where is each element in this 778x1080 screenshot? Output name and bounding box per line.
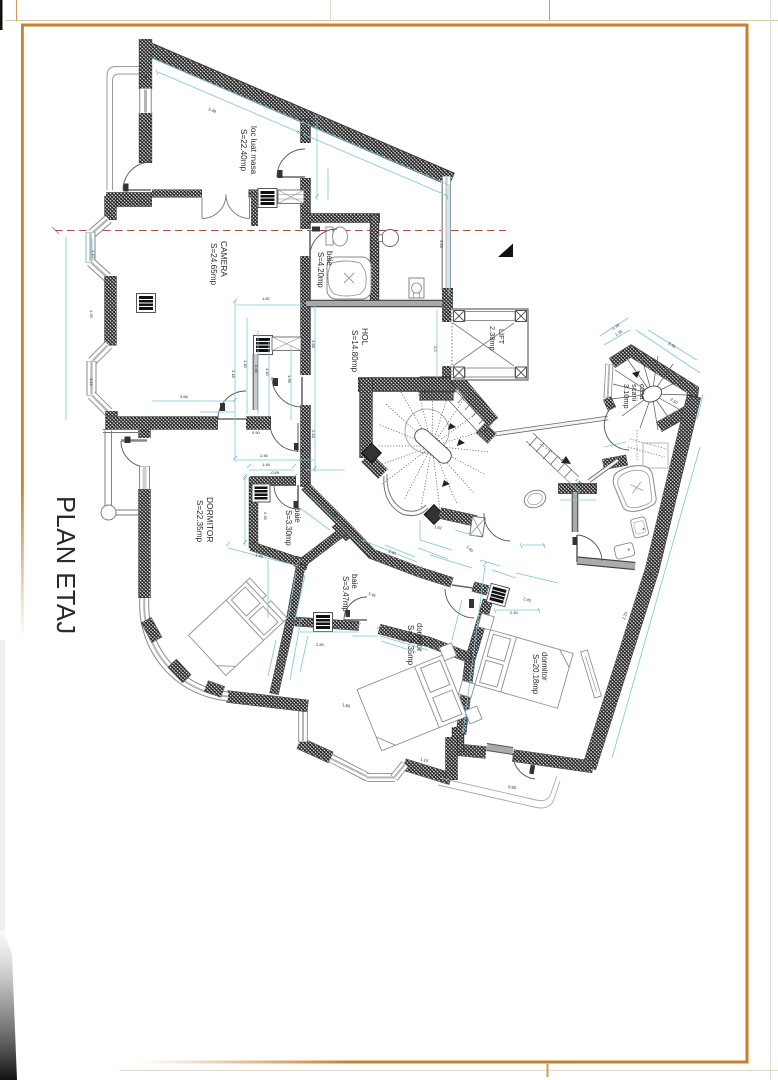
svg-text:loc luat masa: loc luat masa [249,126,258,175]
svg-text:S=20.35mp: S=20.35mp [406,625,415,666]
svg-text:S=3.47mp: S=3.47mp [341,576,350,612]
svg-text:2.0: 2.0 [433,346,438,352]
svg-text:2.40: 2.40 [510,610,519,615]
svg-text:1.35: 1.35 [89,310,94,319]
svg-text:2.35: 2.35 [263,512,268,521]
svg-text:DORMITOR: DORMITOR [205,497,215,542]
svg-text:1.12: 1.12 [89,378,94,387]
svg-text:1.86: 1.86 [140,74,149,79]
svg-text:LIFT: LIFT [497,329,506,345]
svg-text:HOL: HOL [360,328,370,346]
svg-text:S=20.18mp: S=20.18mp [531,654,540,695]
svg-text:S=14.80mp: S=14.80mp [350,330,359,373]
svg-text:S=22.40mp: S=22.40mp [239,129,248,172]
svg-text:0.46: 0.46 [254,365,259,374]
svg-text:1.82: 1.82 [262,296,271,301]
svg-text:1.48: 1.48 [262,462,271,467]
svg-text:3.10mp: 3.10mp [622,384,631,409]
svg-text:2.80: 2.80 [316,642,325,647]
svg-text:-0.59: -0.59 [270,470,280,475]
svg-text:1.36: 1.36 [296,448,305,453]
svg-text:3.26: 3.26 [439,240,444,249]
svg-text:baie: baie [350,574,359,589]
svg-text:1.10: 1.10 [91,250,96,259]
svg-text:S=22.35mp: S=22.35mp [195,500,204,543]
svg-text:S=3.30mp: S=3.30mp [284,510,293,546]
svg-text:2.38mp: 2.38mp [488,326,497,351]
svg-text:2.18: 2.18 [311,430,316,439]
svg-text:3.18: 3.18 [231,370,236,379]
svg-text:1.40: 1.40 [243,360,248,369]
svg-text:baie: baie [293,508,302,523]
svg-text:4.40: 4.40 [265,368,270,377]
svg-text:CAMERA: CAMERA [219,241,229,277]
svg-text:PLAN ETAJ: PLAN ETAJ [51,496,79,635]
svg-text:S=24.65mp: S=24.65mp [209,243,218,286]
svg-text:3.68: 3.68 [311,340,316,349]
svg-text:3.66: 3.66 [180,394,189,399]
svg-text:baie: baie [325,251,334,266]
svg-text:2.46: 2.46 [260,453,269,458]
svg-text:1.96: 1.96 [287,375,292,384]
svg-text:dormitor: dormitor [540,652,549,681]
svg-text:0.90: 0.90 [252,430,261,435]
svg-text:S=4.20mp: S=4.20mp [316,252,325,288]
